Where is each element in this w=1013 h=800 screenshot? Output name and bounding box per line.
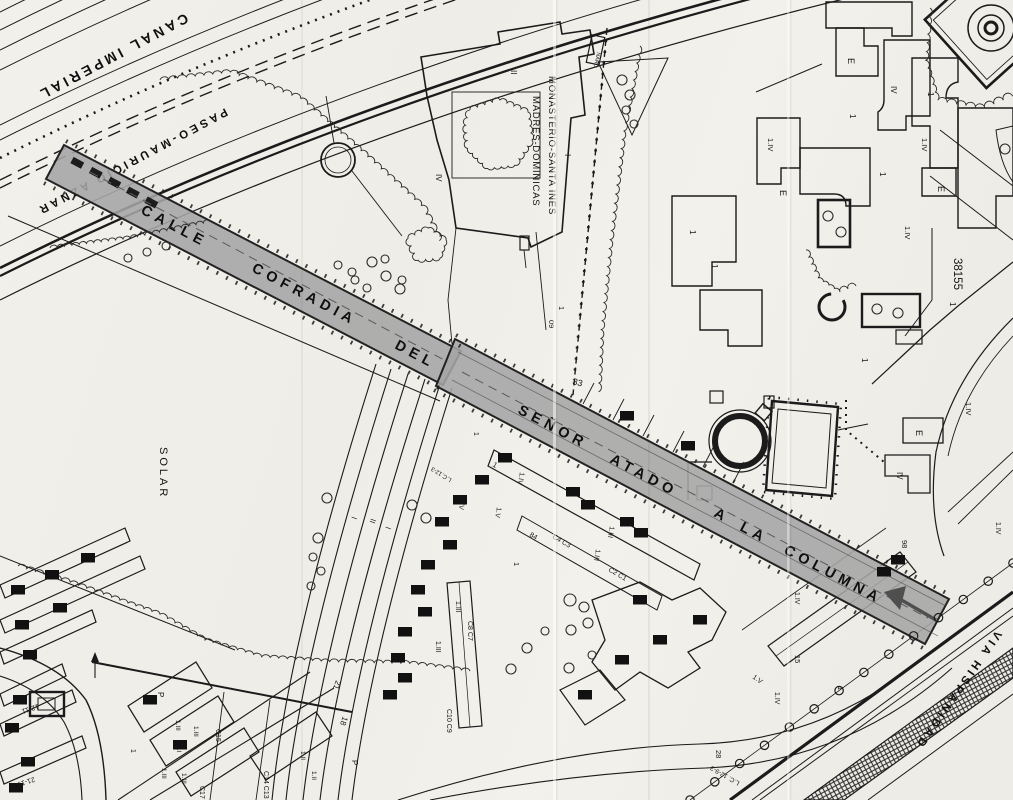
map-label: 1.IV bbox=[964, 402, 973, 415]
map-label: 1.IV bbox=[793, 592, 800, 605]
map-label: 1.IV bbox=[903, 226, 912, 239]
map-label: 1.IV bbox=[773, 692, 780, 705]
map-label: 1 bbox=[710, 264, 719, 269]
map-label: 1 bbox=[878, 172, 887, 177]
map-label: IV bbox=[434, 174, 443, 182]
solar-label: SOLAR bbox=[157, 447, 169, 499]
map-label: 1.III bbox=[192, 726, 199, 737]
map-label: 1.I bbox=[175, 745, 182, 752]
map-label: 15 bbox=[793, 655, 802, 663]
map-label: C17 C16 bbox=[198, 786, 205, 800]
map-label: 1 bbox=[557, 306, 566, 310]
map-label: 1 bbox=[836, 686, 845, 690]
map-label: 1 bbox=[688, 230, 697, 235]
map-label: C8 C7 bbox=[466, 621, 473, 641]
map-label: 1.III bbox=[434, 641, 441, 653]
map-label: P bbox=[350, 760, 359, 765]
map-label: C10 C9 bbox=[445, 709, 452, 733]
map-label: 1.III bbox=[160, 768, 167, 779]
map-label: E bbox=[914, 430, 924, 436]
map-label: IV bbox=[889, 86, 898, 94]
map-label: II bbox=[509, 70, 518, 74]
map-label: E bbox=[846, 58, 856, 64]
map-label: 1 bbox=[948, 302, 957, 307]
map-label: 1 bbox=[848, 114, 857, 119]
map-label: 28 bbox=[714, 750, 723, 758]
scanned-city-plan: CANAL IMPERIAL PASEO-MAURICIO AZNAR MONA… bbox=[0, 0, 1013, 800]
map-label: 1.III bbox=[180, 773, 187, 784]
map-label: C14 C13 bbox=[262, 771, 269, 799]
city-plan-svg: CANAL IMPERIAL PASEO-MAURICIO AZNAR MONA… bbox=[0, 0, 1013, 800]
map-label: 1.IV bbox=[766, 138, 775, 151]
map-label: 1 bbox=[926, 92, 935, 97]
map-label: E bbox=[936, 186, 946, 192]
map-label: 1.IV bbox=[920, 138, 929, 151]
map-label: 1 bbox=[472, 432, 479, 436]
map-label: 1.II bbox=[310, 771, 317, 780]
map-label: C15 bbox=[214, 729, 221, 742]
solar-area: SOLAR bbox=[157, 447, 169, 499]
map-label: 1.IV bbox=[994, 522, 1001, 535]
map-label: I bbox=[563, 154, 572, 156]
map-label: 1 bbox=[860, 358, 869, 363]
map-label: 38155 bbox=[951, 258, 963, 290]
map-label: 1 bbox=[129, 749, 136, 753]
map-label: 1.III bbox=[454, 601, 461, 613]
map-label: E bbox=[778, 190, 788, 196]
map-label: IV bbox=[895, 472, 904, 480]
map-label: 98 bbox=[900, 540, 909, 548]
map-label: 1.III bbox=[174, 720, 181, 731]
map-label: P bbox=[156, 692, 165, 697]
monastery-name-line2: MADRES-DOMINICAS bbox=[530, 96, 541, 206]
map-label: 1 bbox=[512, 562, 521, 566]
